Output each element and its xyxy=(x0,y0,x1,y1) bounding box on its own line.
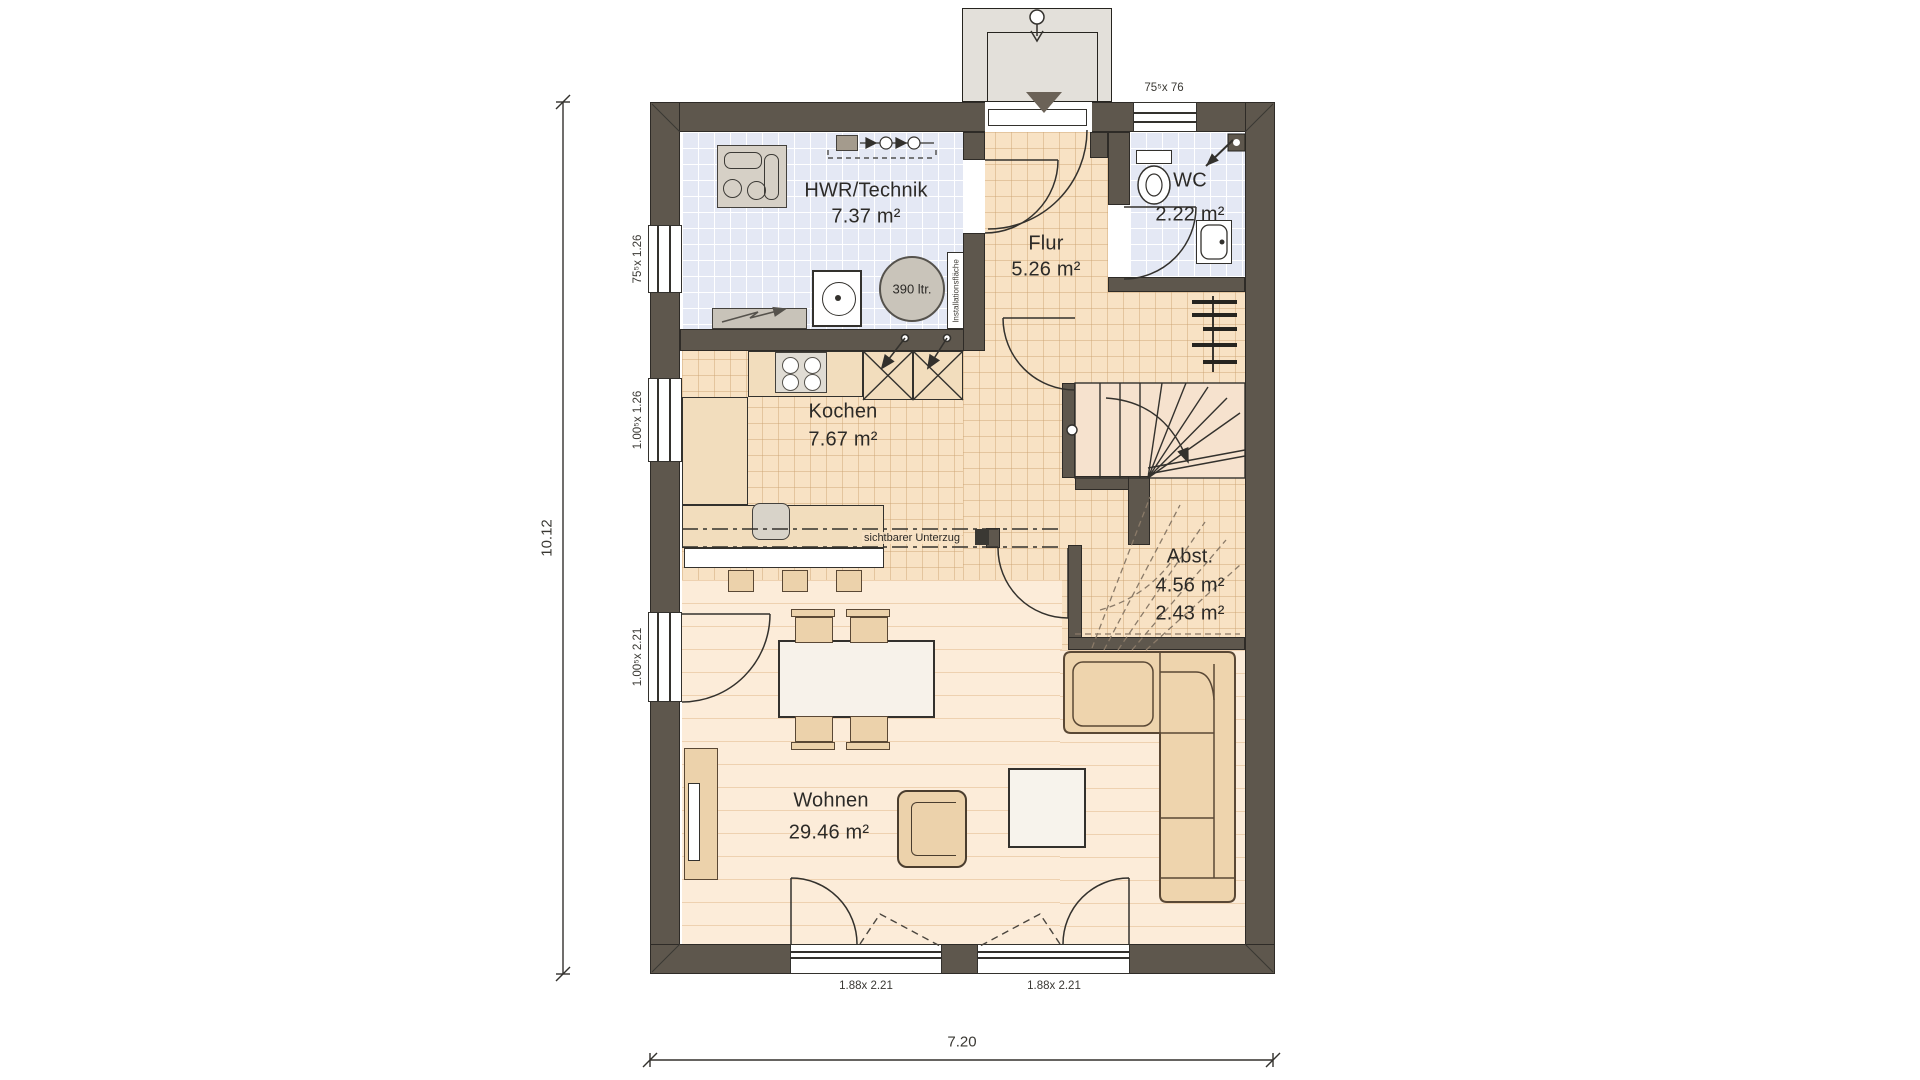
chair-bottom-2-back xyxy=(846,742,890,750)
wall-stair-left xyxy=(1062,383,1075,478)
hwr-door-opening xyxy=(963,160,985,233)
room-label-kochen: Kochen xyxy=(808,401,877,424)
stove xyxy=(775,352,827,393)
shaft-box-1 xyxy=(863,351,913,400)
burner-2 xyxy=(804,357,821,374)
dim-overall-height: 10.12 xyxy=(539,519,556,557)
window-glass-line xyxy=(669,613,671,701)
room-area-wc: 2.22 m² xyxy=(1155,204,1224,227)
dim-window-wohnen: 1.00⁵x 2.21 xyxy=(632,628,644,686)
window-glass-line xyxy=(657,613,659,701)
room-area-abst: 4.56 m² xyxy=(1155,575,1224,598)
side-table xyxy=(1008,768,1086,848)
armchair xyxy=(897,790,967,868)
toilet-cistern xyxy=(1136,150,1172,164)
terrace-door-left xyxy=(790,944,942,974)
door-frame-line xyxy=(791,951,941,953)
installation-label: Installationsfläche xyxy=(952,259,961,323)
window-glass-line xyxy=(1134,112,1196,114)
washer-dryer-unit xyxy=(717,145,787,208)
floor-living-planks-right xyxy=(1060,650,1245,944)
tv-screen xyxy=(688,783,700,861)
chair-top-1-seat xyxy=(795,617,833,643)
wall-abst-pier xyxy=(986,528,1000,548)
wc-sink xyxy=(1196,220,1232,264)
bar-stool-1 xyxy=(728,570,754,592)
wall-wc-left-upper xyxy=(1108,132,1130,205)
room-area-wohnen: 29.46 m² xyxy=(789,822,870,845)
room-area-hwr: 7.37 m² xyxy=(831,206,900,229)
wall-entrance-stub xyxy=(1090,132,1108,158)
chair-top-2-back xyxy=(846,609,890,617)
armchair-inner xyxy=(911,802,956,856)
burner-4 xyxy=(804,374,821,391)
burner-3 xyxy=(782,374,799,391)
drum-circle-2 xyxy=(747,181,766,200)
wall-outer-bottom xyxy=(650,944,1275,974)
window-wc xyxy=(1133,102,1197,132)
dim-overall-width: 7.20 xyxy=(947,1034,976,1051)
room-label-abst: Abst. xyxy=(1167,546,1214,569)
window-wohnen xyxy=(648,612,682,702)
detergent-tray xyxy=(724,152,762,169)
chair-top-1-back xyxy=(791,609,835,617)
wall-hwr-flur-lower xyxy=(963,233,985,351)
window-glass-line xyxy=(657,379,659,461)
bar-stool-3 xyxy=(836,570,862,592)
dim-window-hwr: 75⁵x 1.26 xyxy=(632,235,644,284)
wall-abst-left xyxy=(1068,545,1082,650)
room-area2-abst: 2.43 m² xyxy=(1155,603,1224,626)
hose-pill xyxy=(764,154,779,200)
shaft-box-2 xyxy=(913,351,963,400)
window-kochen xyxy=(648,378,682,462)
room-label-wohnen: Wohnen xyxy=(793,790,868,813)
wall-wc-bottom xyxy=(1108,277,1245,292)
chair-bottom-1-seat xyxy=(795,716,833,742)
window-glass-line xyxy=(657,226,659,292)
drum-circle-1 xyxy=(723,179,742,198)
room-label-hwr: HWR/Technik xyxy=(804,180,927,203)
bar-stool-2 xyxy=(782,570,808,592)
kitchen-sink xyxy=(752,503,790,540)
chair-bottom-1-back xyxy=(791,742,835,750)
terrace-door-right xyxy=(977,944,1130,974)
room-label-wc: WC xyxy=(1173,170,1207,193)
dining-table xyxy=(778,640,935,718)
entrance-door-panel xyxy=(988,109,1087,126)
window-hwr xyxy=(648,225,682,293)
beam-label: sichtbarer Unterzug xyxy=(862,532,962,544)
dim-window-wc: 75⁵x 76 xyxy=(1144,82,1183,94)
chair-top-2-seat xyxy=(850,617,888,643)
wall-hwr-flur-upper xyxy=(963,132,985,160)
tv-sideboard xyxy=(684,748,718,880)
heater-dot xyxy=(835,295,841,301)
heater-unit xyxy=(812,270,862,327)
hwr-shelf xyxy=(712,308,807,329)
kitchen-counter-left xyxy=(682,397,748,505)
door-frame-line xyxy=(791,957,941,959)
stairs-base xyxy=(1075,383,1245,478)
wall-outer-right xyxy=(1245,102,1275,974)
wall-under-stairs-vert xyxy=(1128,476,1150,545)
bar-counter xyxy=(684,548,884,568)
floor-plan: 390 ltr. Installationsfläche xyxy=(0,0,1920,1080)
dim-window-kochen: 1.00⁵x 1.26 xyxy=(632,391,644,449)
room-area-flur: 5.26 m² xyxy=(1011,259,1080,282)
tank-label: 390 ltr. xyxy=(892,282,931,297)
porch-inner-line xyxy=(987,32,1098,102)
meter-box xyxy=(836,135,858,151)
dim-terrace-left: 1.88x 2.21 xyxy=(839,980,893,992)
door-frame-line xyxy=(978,951,1129,953)
door-frame-line xyxy=(978,957,1129,959)
room-area-kochen: 7.67 m² xyxy=(808,429,877,452)
dim-terrace-right: 1.88x 2.21 xyxy=(1027,980,1081,992)
room-label-flur: Flur xyxy=(1028,233,1063,256)
wall-abst-bottom xyxy=(1068,637,1245,650)
window-glass-line xyxy=(1134,121,1196,123)
wc-door-opening xyxy=(1108,205,1130,277)
window-glass-line xyxy=(669,379,671,461)
window-glass-line xyxy=(669,226,671,292)
chair-bottom-2-seat xyxy=(850,716,888,742)
wall-hwr-kitchen xyxy=(680,329,965,351)
burner-1 xyxy=(782,357,799,374)
